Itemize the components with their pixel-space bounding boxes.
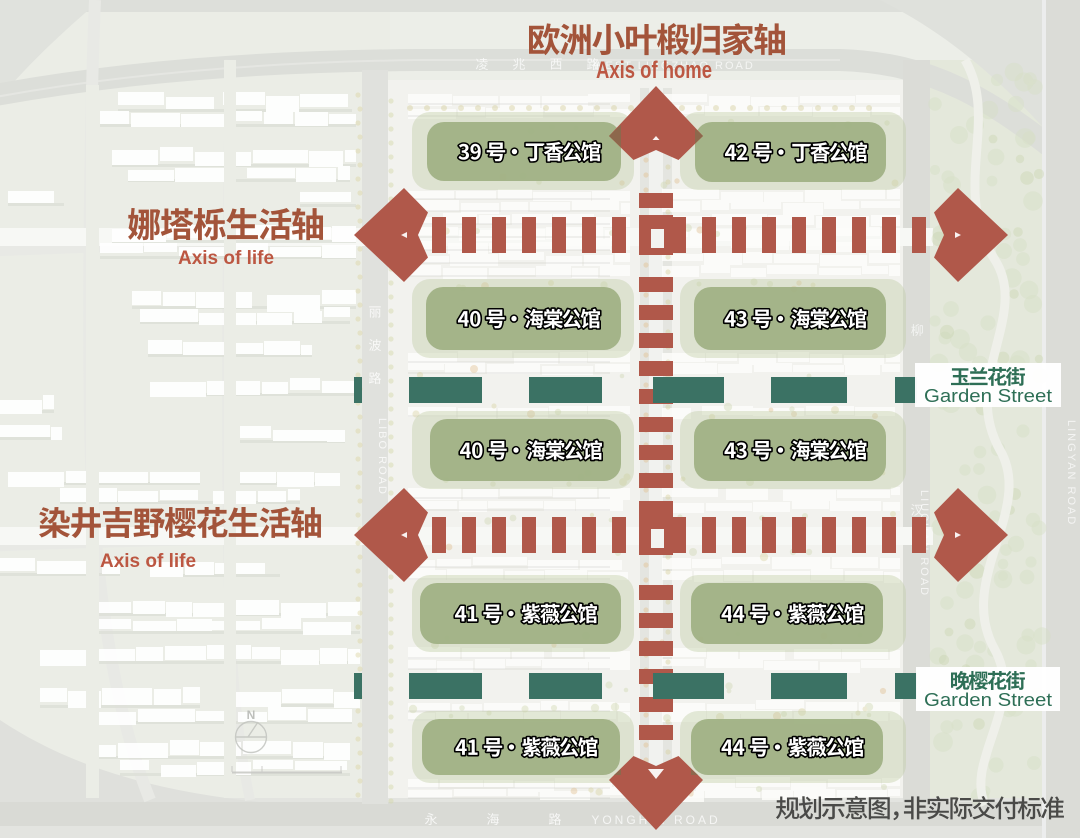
svg-text:N: N [247, 708, 256, 722]
svg-text:LINGYAN ROAD: LINGYAN ROAD [1065, 420, 1077, 526]
svg-text:LIBO ROAD: LIBO ROAD [376, 418, 388, 496]
svg-text:Axis of life: Axis of life [100, 551, 196, 572]
svg-text:Axis of life: Axis of life [178, 248, 274, 269]
svg-text:Garden Street: Garden Street [924, 689, 1052, 710]
svg-text:Axis of home: Axis of home [596, 57, 712, 84]
svg-text:Garden Street: Garden Street [924, 385, 1052, 406]
